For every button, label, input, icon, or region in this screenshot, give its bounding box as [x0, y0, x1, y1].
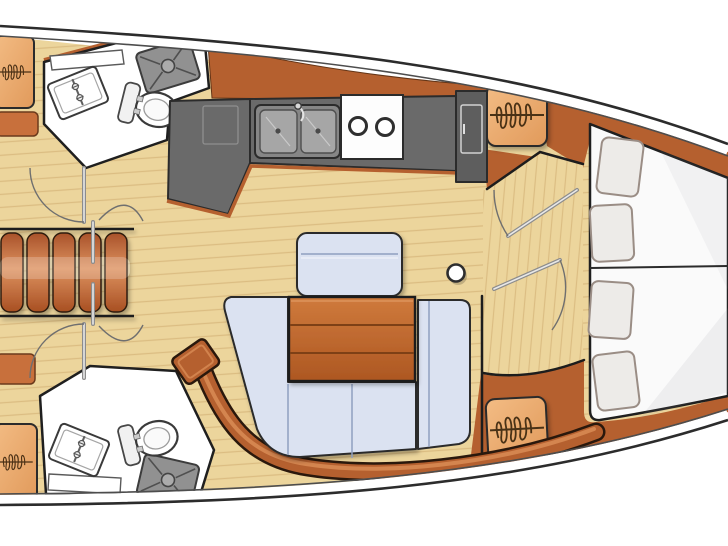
hanging-locker-aft-bottom: [0, 424, 37, 500]
burner-icon: [350, 118, 367, 135]
aft-berth-edge-bottom: [0, 354, 35, 384]
pillow-4: [592, 351, 641, 412]
vestibule-plank-lines: [483, 153, 583, 375]
stove-burners-icon: [341, 95, 403, 159]
floor-plan-canvas: [0, 0, 728, 546]
companionway-steps: [0, 229, 134, 316]
pillow-1: [596, 137, 645, 198]
pillow-2: [590, 204, 635, 262]
mast-post: [448, 265, 465, 282]
galley-sink-icon: [255, 103, 340, 158]
refrigerator: [456, 91, 487, 182]
aft-berth-edge-top: [0, 112, 38, 136]
pillow-3: [588, 281, 634, 340]
vanity-counter-strip: [48, 474, 121, 494]
step-highlight: [0, 257, 130, 279]
burner-icon: [377, 119, 394, 136]
dinette-table: [289, 297, 415, 381]
dinette-bench: [297, 233, 402, 296]
faucet-icon: [295, 103, 301, 109]
boat-floor-plan: [0, 0, 728, 546]
chaise-cushion: [418, 300, 470, 449]
hanging-locker-aft-top: [0, 36, 34, 108]
